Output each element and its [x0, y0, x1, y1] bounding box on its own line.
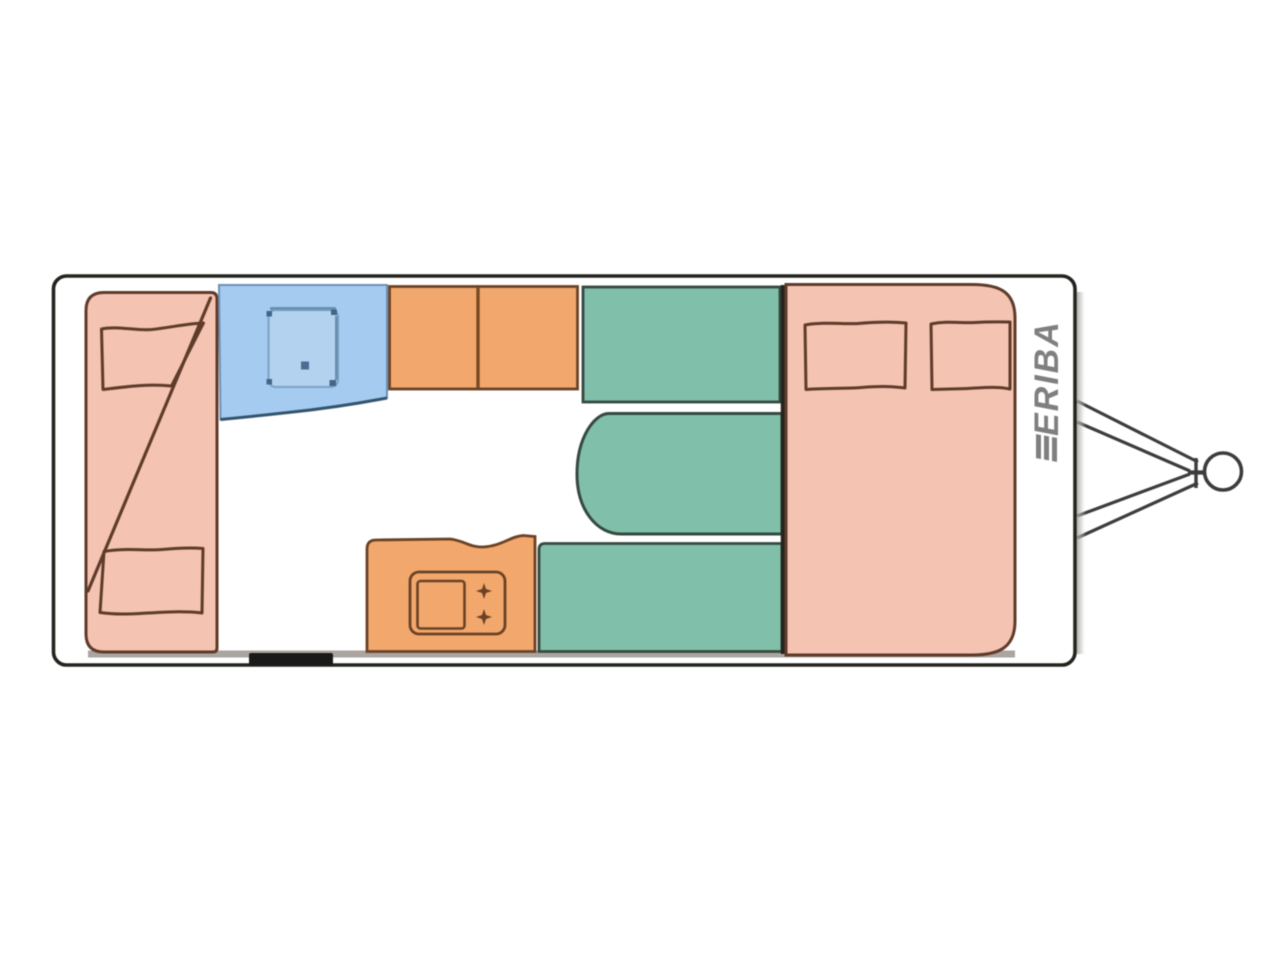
- svg-text:ERIBA: ERIBA: [1028, 320, 1066, 436]
